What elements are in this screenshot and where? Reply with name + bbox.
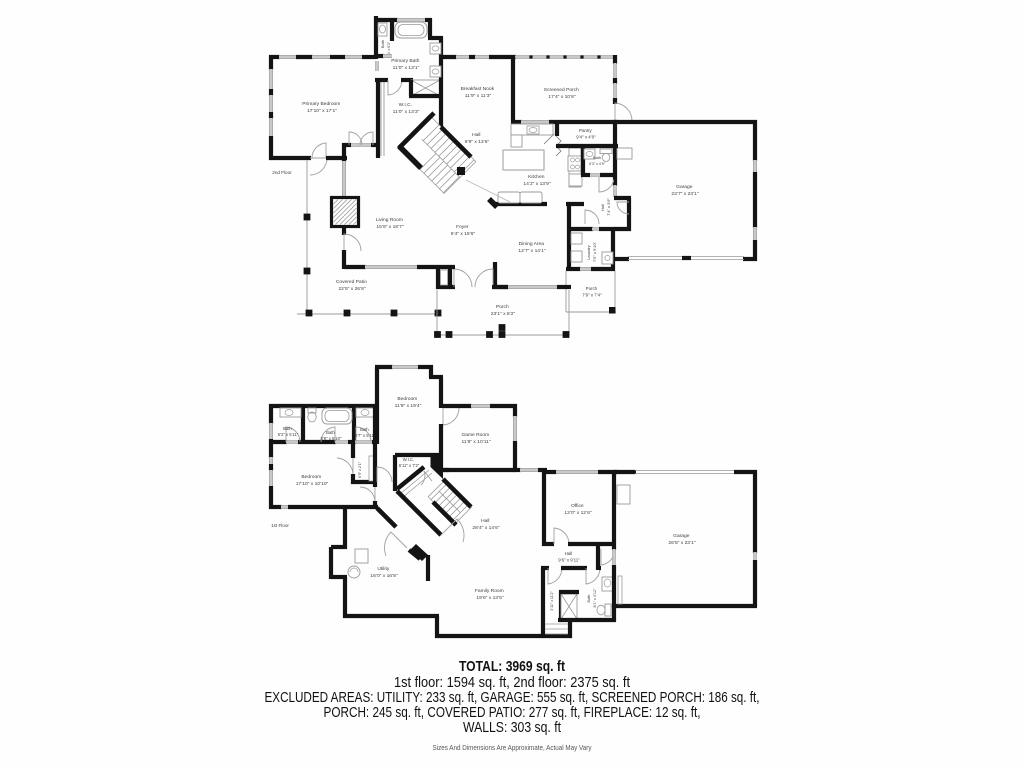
svg-text:PORCH: 245 sq. ft, COVERED PAT: PORCH: 245 sq. ft, COVERED PATIO: 277 sq… [324, 705, 701, 721]
svg-text:EXCLUDED AREAS: UTILITY: 233 s: EXCLUDED AREAS: UTILITY: 233 sq. ft, GAR… [265, 690, 760, 706]
svg-text:6’9" x 2’1": 6’9" x 2’1" [358, 461, 362, 478]
svg-text:WALLS: 303 sq. ft: WALLS: 303 sq. ft [463, 720, 561, 736]
svg-text:Laundry 7’5" x 9’10": Laundry 7’5" x 9’10" [586, 241, 597, 262]
svg-text:1st Floor: 1st Floor [271, 523, 289, 528]
svg-text:5’3" x 4’9": 5’3" x 4’9" [589, 162, 606, 166]
svg-text:4' x 6'3": 4' x 6'3" [387, 41, 391, 54]
svg-text:Bath: Bath [380, 40, 385, 48]
svg-text:TOTAL: 3969 sq. ft: TOTAL: 3969 sq. ft [459, 658, 565, 675]
svg-text:2nd Floor: 2nd Floor [272, 170, 292, 175]
svg-text:Bath: Bath [593, 155, 601, 160]
svg-text:1st floor: 1594 sq. ft, 2nd fl: 1st floor: 1594 sq. ft, 2nd floor: 2375 … [394, 675, 630, 691]
svg-text:3’11" x 11’2": 3’11" x 11’2" [550, 591, 554, 611]
svg-text:Sizes And Dimensions Are Appro: Sizes And Dimensions Are Approximate, Ac… [433, 743, 592, 752]
